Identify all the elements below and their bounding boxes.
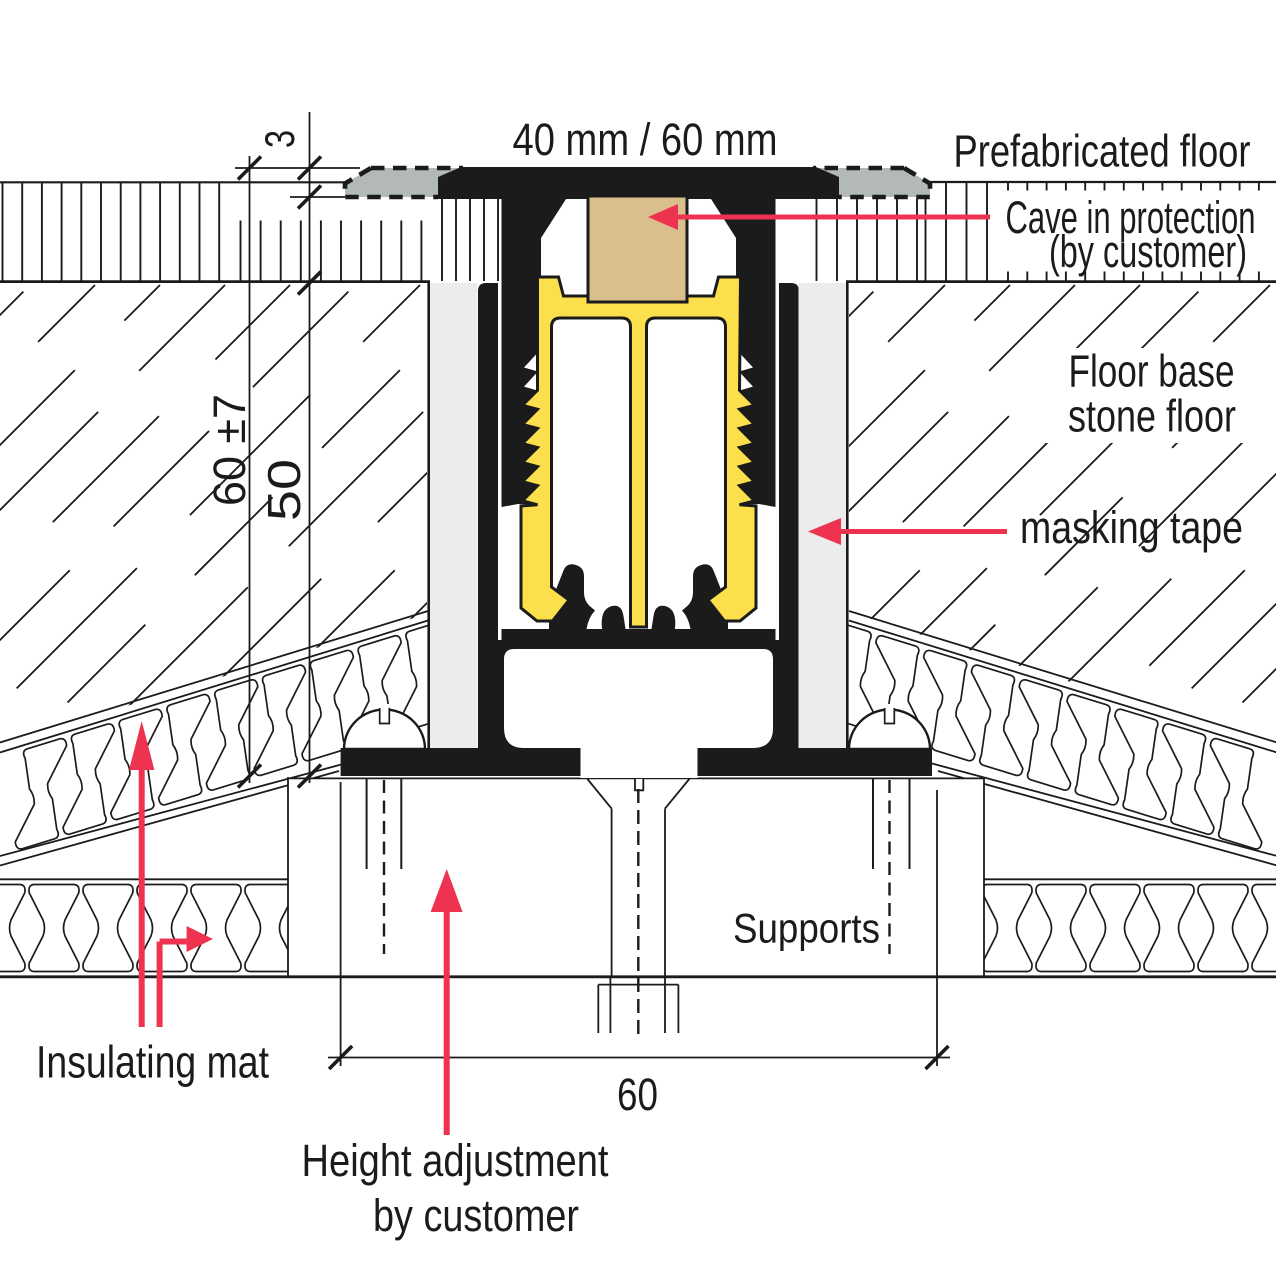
svg-text:Prefabricated floor: Prefabricated floor xyxy=(954,126,1251,177)
svg-text:60 ±7: 60 ±7 xyxy=(204,394,255,506)
svg-text:Supports: Supports xyxy=(733,905,880,952)
svg-text:50: 50 xyxy=(258,459,310,521)
svg-text:stone floor: stone floor xyxy=(1068,391,1236,442)
svg-text:Insulating mat: Insulating mat xyxy=(36,1037,269,1088)
svg-text:60: 60 xyxy=(617,1069,658,1120)
svg-text:by customer: by customer xyxy=(373,1190,579,1241)
svg-text:3: 3 xyxy=(256,130,303,148)
svg-text:40 mm / 60 mm: 40 mm / 60 mm xyxy=(513,114,778,165)
svg-text:masking tape: masking tape xyxy=(1020,502,1243,553)
svg-text:(by customer): (by customer) xyxy=(1049,226,1247,277)
svg-text:Floor base: Floor base xyxy=(1069,346,1235,397)
svg-text:Height adjustment: Height adjustment xyxy=(302,1135,609,1186)
